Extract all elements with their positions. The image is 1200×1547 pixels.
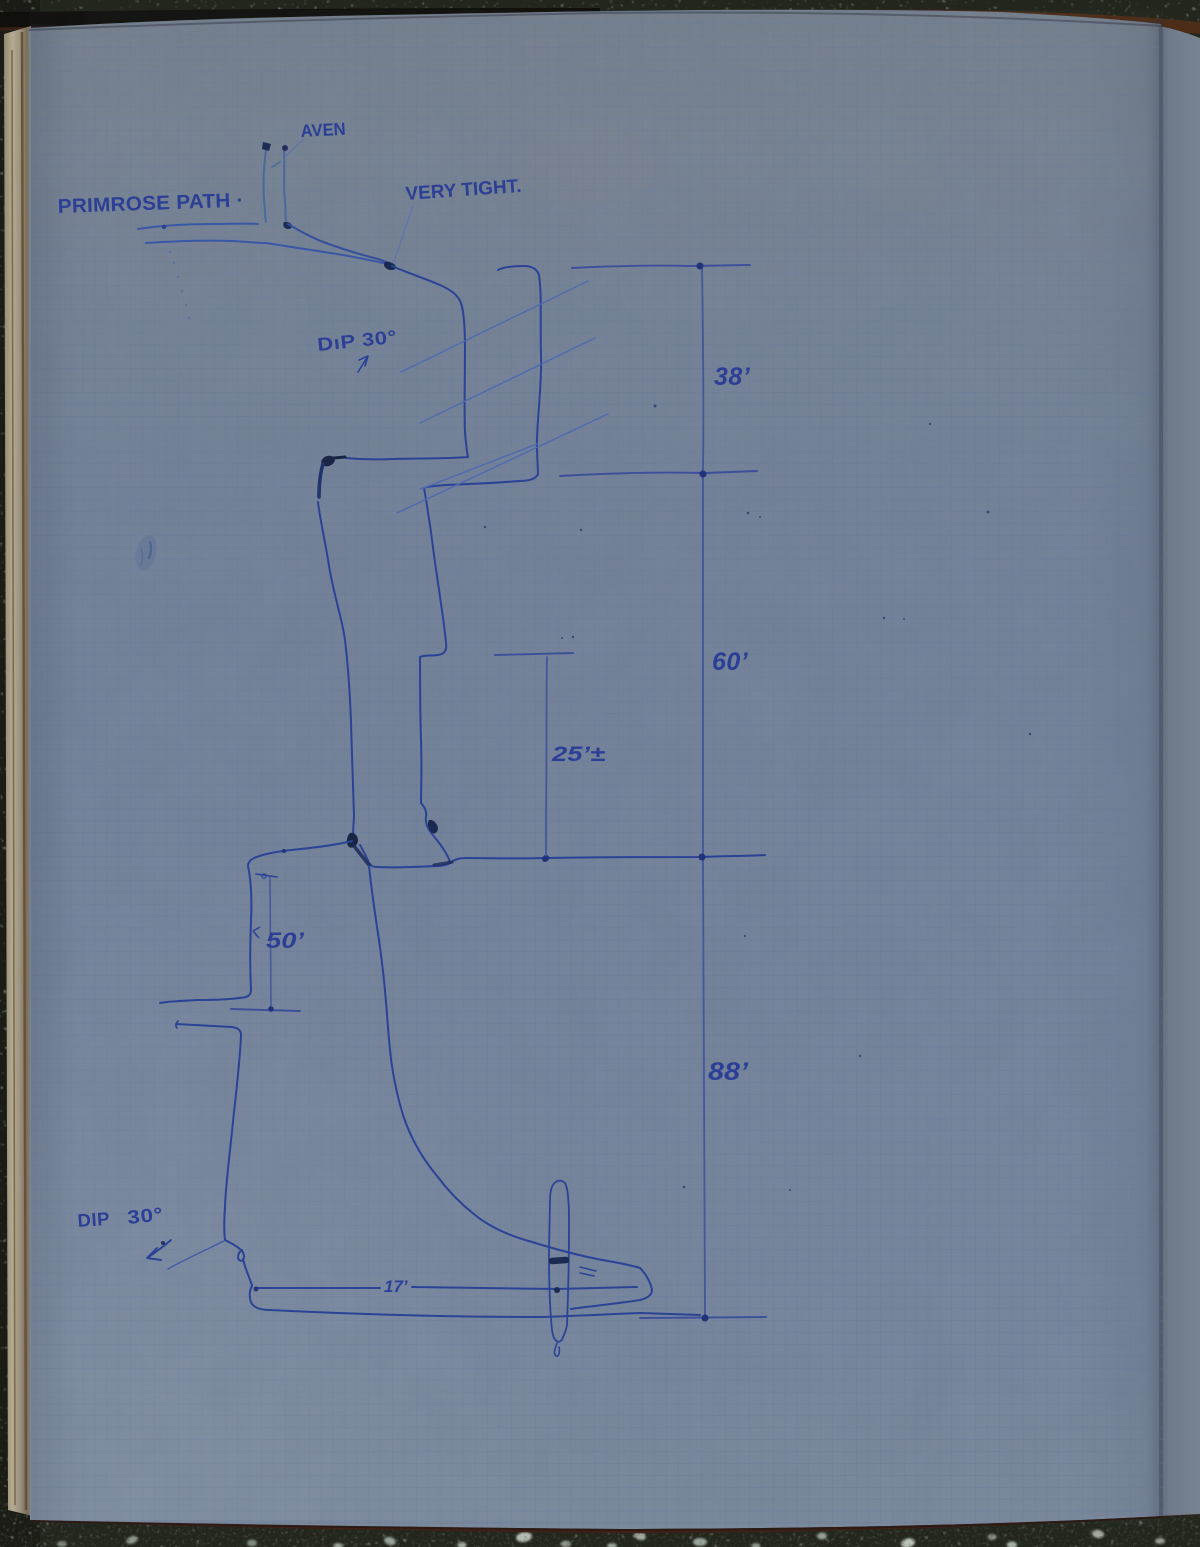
svg-text:DIP: DIP bbox=[77, 1208, 111, 1231]
svg-text:30°: 30° bbox=[126, 1204, 164, 1229]
svg-text:88’: 88’ bbox=[708, 1058, 749, 1086]
svg-text:60’: 60’ bbox=[712, 648, 749, 676]
svg-text:50’: 50’ bbox=[266, 928, 305, 953]
svg-text:25’±: 25’± bbox=[551, 743, 606, 766]
svg-text:AVEN: AVEN bbox=[300, 119, 346, 141]
svg-text:17’: 17’ bbox=[384, 1277, 408, 1296]
svg-text:38’: 38’ bbox=[714, 363, 751, 391]
